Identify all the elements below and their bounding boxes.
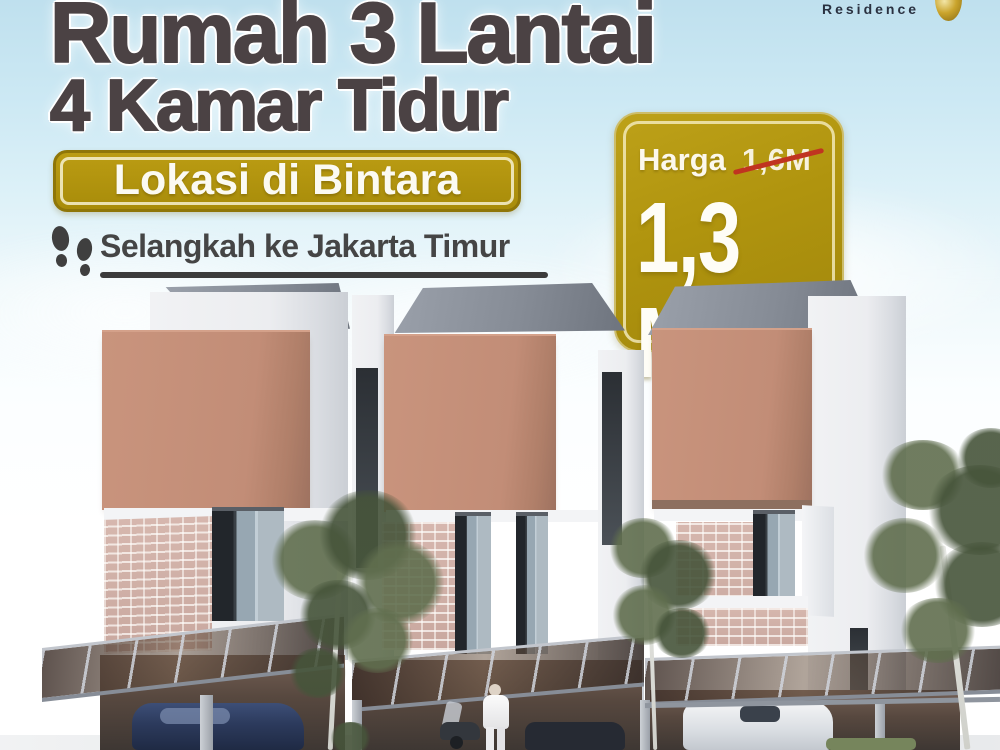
middle-house-window-left — [455, 512, 491, 654]
footsteps-icon — [52, 224, 98, 284]
tree-foliage — [288, 648, 348, 698]
location-badge: Lokasi di Bintara — [53, 150, 521, 212]
poster: Harga 1,6M 1,3 M — [0, 0, 1000, 750]
person-leg — [497, 727, 505, 750]
shadowed-car — [525, 722, 625, 750]
middle-house-facade-panel — [384, 334, 556, 512]
navy-car-windshield — [160, 708, 230, 724]
scooter-wheel — [450, 736, 463, 749]
middle-house-right-window-strip — [602, 372, 622, 545]
tree-foliage — [898, 598, 978, 663]
gold-sphere-icon — [935, 0, 962, 21]
right-house-facade-panel — [652, 328, 812, 508]
grass-strip — [826, 738, 916, 750]
middle-house-roof — [390, 283, 625, 333]
tree-foliage — [652, 608, 712, 658]
tagline-underline — [100, 272, 548, 278]
middle-house-window-right — [516, 512, 548, 654]
tagline-text: Selangkah ke Jakarta Timur — [100, 228, 510, 265]
left-house-facade-panel — [102, 330, 310, 510]
headline-line2: 4 Kamar Tidur — [50, 64, 507, 148]
person-body — [483, 695, 509, 729]
bush — [328, 722, 373, 750]
tree-foliage — [340, 608, 415, 673]
middle-house-floor-band — [386, 510, 598, 522]
canopy-post — [200, 695, 213, 750]
person-leg — [486, 727, 494, 750]
white-car-windshield — [740, 706, 780, 722]
brand-logo: Residence — [822, 1, 962, 21]
right-house-panel-underside — [652, 500, 812, 509]
brand-name: Residence — [822, 1, 919, 17]
